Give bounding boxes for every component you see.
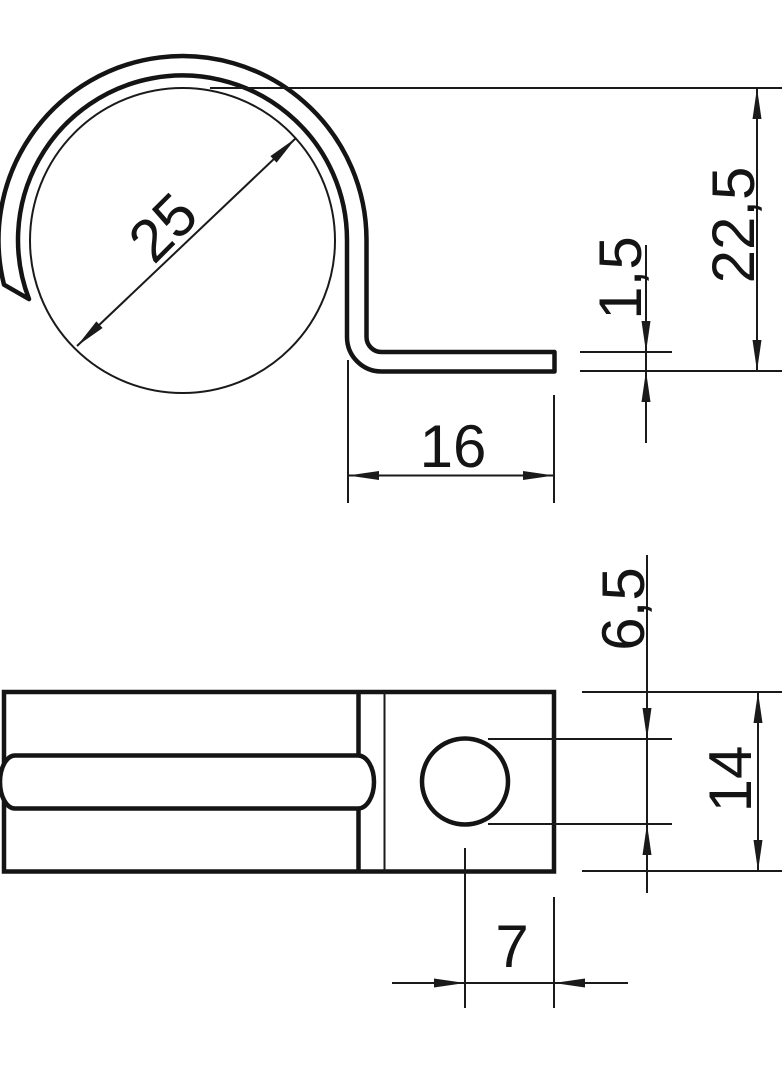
top-view-side-profile: 25 22,5 1,5 16: [0, 56, 782, 503]
arrowhead: [434, 979, 465, 988]
clamp-strap-profile: [0, 56, 555, 371]
arrowhead: [348, 471, 379, 480]
arrowhead: [77, 321, 103, 346]
dim-label-7: 7: [495, 913, 528, 980]
dim-foot-length: 16: [348, 360, 554, 503]
arrowhead: [753, 88, 762, 119]
arrowhead: [643, 708, 652, 739]
arrowhead: [643, 824, 652, 855]
arrowhead: [754, 692, 763, 723]
dim-material-thickness: 1,5: [587, 236, 654, 443]
bottom-view-base-plate: 6,5 14 7: [0, 555, 782, 1008]
arrowhead: [642, 321, 651, 352]
dim-label-14: 14: [697, 746, 764, 813]
dim-label-25: 25: [116, 180, 211, 275]
dim-hole-diameter: 6,5: [590, 555, 657, 893]
dim-label-22-5: 22,5: [700, 167, 767, 284]
dim-total-height: 22,5: [700, 88, 767, 371]
dim-label-6-5: 6,5: [590, 567, 657, 650]
technical-drawing-page: 25 22,5 1,5 16: [0, 0, 784, 1066]
dim-label-1-5: 1,5: [587, 236, 654, 319]
dim-clamp-diameter: 25: [77, 138, 296, 346]
mounting-hole: [422, 739, 508, 825]
arrowhead: [270, 138, 296, 163]
arrowhead: [754, 840, 763, 871]
clamp-technical-drawing: 25 22,5 1,5 16: [0, 0, 784, 1066]
dim-label-16: 16: [420, 413, 487, 480]
arrowhead: [554, 979, 585, 988]
arrowhead: [523, 471, 554, 480]
arrowhead: [642, 371, 651, 402]
arrowhead: [753, 340, 762, 371]
dim-base-width: 14: [582, 692, 782, 871]
slot-cutout: [0, 756, 374, 809]
